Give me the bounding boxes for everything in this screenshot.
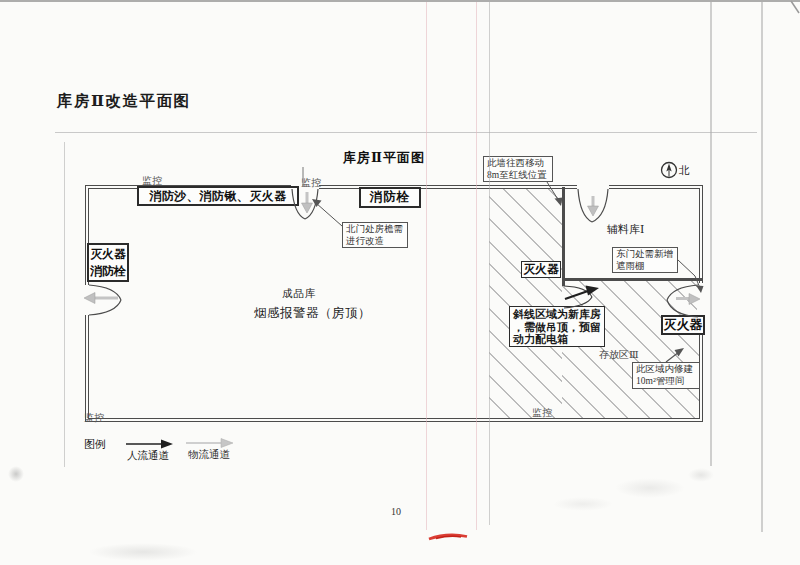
pencil-smudge [8,466,24,482]
scan-page-edge-line [761,2,763,532]
scan-top-edge [0,0,800,2]
management-room-annotation-box: 此区域内修建 10m²管理间 [632,362,700,389]
legend-title: 图例 [84,437,106,452]
fire-hydrant-box: 消防栓 [359,187,421,208]
extinguisher-hydrant-box-west: 灭火器 消防栓 [87,243,129,282]
west-door-opening [83,285,91,315]
wall-move-annotation-box: 此墙往西移动 8m至红线位置 [483,156,553,182]
scan-page-edge-line [710,2,712,466]
fire-sand-shovel-extinguisher-box: 消防沙、消防锹、灭火器 [137,186,299,206]
annotation-line: 遮雨棚 [616,261,674,273]
title-underline [55,132,757,133]
annotation-line: 此墙往西移动 [487,158,549,170]
hatch-area-note-box: 斜线区域为新库房 ，需做吊顶，预留 动力配电箱 [509,306,605,347]
annotation-line: ，需做吊顶，预留 [513,321,601,334]
monitor-label-bottom-left: 监控 [84,411,104,425]
red-pen-mark [429,535,467,539]
annotation-line: 进行改造 [346,236,404,248]
page-number: 10 [391,506,401,517]
pencil-smudge [615,478,685,498]
annotation-line: 动力配电箱 [513,333,601,346]
annotation-line: 斜线区域为新库房 [513,308,601,321]
east-canopy-annotation-box: 东门处需新增 遮雨棚 [612,247,678,273]
scanned-document-page: 库房Ⅱ改造平面图 库房Ⅱ平面图 北 消防沙、消防锹、灭火器 消防栓 灭火器 消防… [0,0,800,565]
extinguisher-box-east: 灭火器 [661,315,705,335]
legend-logistics-flow-label: 物流通道 [188,448,230,462]
north-eave-annotation-box: 北门处房檐需 进行改造 [342,222,408,248]
monitor-label-bottom-mid: 监控 [532,406,552,420]
building-outer-wall [85,185,703,422]
aux-warehouse-left-wall [562,187,565,286]
north-label: 北 [679,164,690,178]
plan-title: 库房Ⅱ平面图 [343,149,425,167]
legend-logistics-arrow-icon [186,439,233,448]
annotation-line: 北门处房檐需 [346,224,404,236]
storage-area-3-label: 存放区Ⅲ [599,348,639,362]
annotation-line: 8m至红线位置 [487,170,549,182]
corner-fold-mark [791,1,799,13]
monitor-label-north-door: 监控 [301,176,321,190]
pencil-smudge [88,543,198,561]
extinguisher-label: 灭火器 [90,246,126,263]
legend-people-arrow-icon [126,440,173,449]
hydrant-label: 消防栓 [90,263,126,280]
annotation-line: 此区域内修建 [636,364,696,376]
aux-warehouse-bottom-wall [562,278,703,281]
pencil-smudge [553,497,613,511]
extinguisher-box-mid: 灭火器 [521,261,561,278]
north-compass-icon [662,163,677,178]
aux-north-door-opening [577,183,609,191]
legend-people-flow-label: 人流通道 [127,449,169,463]
annotation-line: 10m²管理间 [636,376,696,388]
monitor-label-top-left: 监控 [142,174,162,188]
document-title: 库房Ⅱ改造平面图 [57,91,191,112]
pencil-smudge [688,468,714,482]
east-door-opening [697,283,705,315]
scan-fold-line [64,142,65,467]
annotation-line: 东门处需新增 [616,249,674,261]
